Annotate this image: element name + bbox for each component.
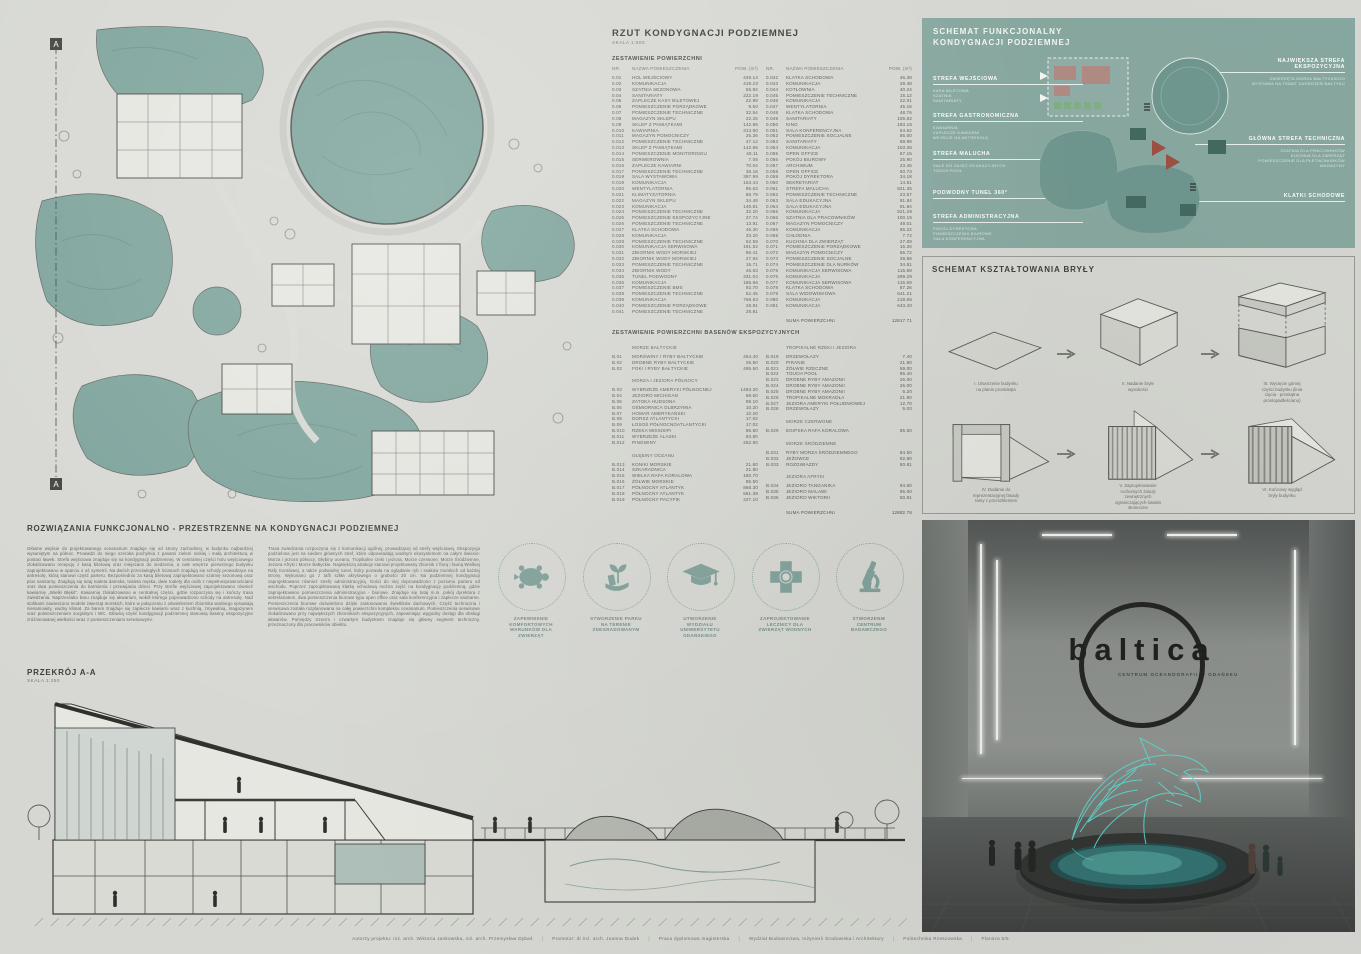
footer-item: Plansza 5/5 xyxy=(962,936,1009,941)
massing-step-3-diagram xyxy=(1223,279,1341,379)
ceiling-light xyxy=(1042,534,1112,536)
goal-university xyxy=(667,543,735,611)
section-drawing xyxy=(25,688,907,930)
arrow-right-icon xyxy=(1201,349,1221,359)
solutions-heading: ROZWIĄZANIA FUNKCJONALNO - PRZESTRZENNE … xyxy=(27,524,399,533)
goal-caption-3: UTWORZENIE WYDZIAŁU UNIWERSYTETU GDAŃSKI… xyxy=(658,616,742,638)
functional-scheme-panel: SCHEMAT FUNKCJONALNY KONDYGNACJI PODZIEM… xyxy=(922,18,1355,248)
goal-caption-4: ZAPROJEKTOWANIE LECZNICY DLA ZWIERZĄT WO… xyxy=(743,616,827,633)
arrow-right-icon xyxy=(1057,349,1077,359)
footer-item: Autorzy projektu: inż. arch. Wiktoria Ja… xyxy=(352,936,533,941)
table-row: B.03 FOKI I RYBY BAŁTYCKIE 495.50 xyxy=(612,366,758,372)
table-row: B.028 DRZEWOŁAZY 5.00 xyxy=(766,406,912,412)
massing-caption-5: V. Zaprojektowanie ruchomych żaluzji zew… xyxy=(1078,483,1198,511)
goal-clinic xyxy=(752,543,820,611)
graduation-cap-icon xyxy=(679,555,723,599)
massing-caption-6: VI. Końcowy wygląd bryły budynku xyxy=(1222,487,1342,498)
table-row: B.029 EGIPSKA RAFA KORALOWA 85.50 xyxy=(766,428,912,434)
footer-item: Wydział Budownictwa, Inżynierii Środowis… xyxy=(730,936,884,941)
turtle-icon xyxy=(511,556,553,598)
massing-caption-3: III. Wycięcie górnej części budynku (lin… xyxy=(1222,381,1342,403)
area-table-subtitle: ZESTAWIENIE POWIERZCHNI xyxy=(612,56,702,62)
area-table-header-left: NR. NAZWA POMIESZCZENIA POW. (m²) xyxy=(612,66,758,71)
goal-caption-2: STWORZENIE PARKU NA TERENIE ZDEGRADOWANY… xyxy=(574,616,658,633)
pools-table-right-column: TROPIKALNE RZEKI I JEZIORA B.019 DRZEWOŁ… xyxy=(766,338,912,516)
massing-caption-4: IV. Dodanie do reprezentacyjnej fasady r… xyxy=(936,487,1056,504)
plan-scale: SKALA 1:500 xyxy=(612,41,912,46)
svg-text:A: A xyxy=(53,40,59,49)
goal-research xyxy=(836,543,904,611)
table-row: 0.041 POMIESZCZENIE TECHNICZNE 28.81 xyxy=(612,309,758,315)
table-row: SUMA POWIERZCHNI 12882.76 xyxy=(766,510,912,516)
goal-caption-1: ZAPEWNIENIE KOMFORTOWYCH WARUNKÓW DLA ZW… xyxy=(489,616,573,638)
footer: Autorzy projektu: inż. arch. Wiktoria Ja… xyxy=(0,936,1361,941)
table-row: SUMA POWIERZCHNI 12817.71 xyxy=(766,318,912,324)
footer-item: Politechnika Rzeszowska xyxy=(884,936,962,941)
table-row: TROPIKALNE RZEKI I JEZIORA xyxy=(766,345,912,351)
table-row: B.033 ROZGWIAZDY 50.81 xyxy=(766,462,912,468)
plan-title: RZUT KONDYGNACJI PODZIEMNEJ xyxy=(612,28,912,39)
table-row: B.019 PÓŁNOCNY PACYFIK 227.10 xyxy=(612,497,758,503)
table-row: B.012 PINGWINY 252.90 xyxy=(612,440,758,446)
massing-step-4-diagram xyxy=(937,409,1055,489)
area-table-left-column: 0.01 HOL WEJŚCIOWY 449.14 0.02 KOMUNIKAC… xyxy=(612,75,758,315)
table-row: MORZE BAŁTYCKIE xyxy=(612,345,758,351)
pool-and-dolphin-sculpture xyxy=(922,708,1355,932)
table-row: MORZE ŚRÓDZIEMNE xyxy=(766,441,912,447)
microscope-icon xyxy=(849,556,891,598)
ceiling-light xyxy=(1167,534,1237,536)
interior-render: baltica CENTRUM OCEANOGRAFII W GDAŃSKU xyxy=(922,520,1355,932)
massing-scheme-panel: SCHEMAT KSZTAŁTOWANIA BRYŁY xyxy=(922,256,1355,514)
massing-step-1-diagram xyxy=(937,297,1055,379)
section-scale: SKALA 1:250 xyxy=(27,679,96,684)
arrow-right-icon xyxy=(1057,449,1077,459)
area-table-header-right: NR. NAZWA POMIESZCZENIA POW. (m²) xyxy=(766,66,912,71)
solutions-paragraph-2: Trasa zwiedzania rozpoczyna się z komuni… xyxy=(268,546,480,628)
massing-scheme-title: SCHEMAT KSZTAŁTOWANIA BRYŁY xyxy=(932,265,1095,274)
table-row: MORZE CZERWONE xyxy=(766,419,912,425)
sprout-hand-icon xyxy=(596,556,638,598)
section-title-block: PRZEKRÓJ A-A SKALA 1:250 xyxy=(27,668,96,684)
area-table-right-column: 0.042 KLATKA SCHODOWA 46.38 0.043 KOMUNI… xyxy=(766,75,912,324)
goal-caption-5: STWORZENIE CENTRUM BADAWCZEGO xyxy=(827,616,911,633)
goal-park xyxy=(583,543,651,611)
massing-step-5-diagram xyxy=(1079,403,1197,489)
underground-floor-plan-drawing: A A xyxy=(22,16,602,512)
section-title: PRZEKRÓJ A-A xyxy=(27,668,96,677)
table-row: MORZA I JEZIORA PÓŁNOCY xyxy=(612,378,758,384)
massing-step-2-diagram xyxy=(1079,285,1197,379)
presentation-board: A A RZUT KONDYGNACJI PODZIEMNEJ SKALA 1:… xyxy=(0,0,1361,954)
pools-table-left-column: MORZE BAŁTYCKIE B.01 MORŚWINY I RYBY BAŁ… xyxy=(612,338,758,502)
massing-step-6-diagram xyxy=(1223,409,1341,489)
goal-animal-welfare xyxy=(498,543,566,611)
solutions-paragraph-1: Główne wejście do projektowanego oceanar… xyxy=(27,546,253,622)
baltica-logo-subtitle: CENTRUM OCEANOGRAFII W GDAŃSKU xyxy=(1118,672,1278,677)
table-row: JEZIORA AFRYKI xyxy=(766,474,912,480)
table-row: B.036 JEZIORO WIKTORII 50.81 xyxy=(766,495,912,501)
arrow-right-icon xyxy=(1201,449,1221,459)
massing-caption-2: II. Nadanie bryle wysokości xyxy=(1078,381,1198,392)
pools-table-title: ZESTAWIENIE POWIERZCHNI BASENÓW EKSPOZYC… xyxy=(612,330,800,336)
footer-item: Promotor: dr inż. arch. Joanna Dudek xyxy=(533,936,640,941)
table-row: GŁĘBINY OCEANU xyxy=(612,453,758,459)
massing-caption-1: I. Utworzenie budynku na planie prostoką… xyxy=(936,381,1056,392)
footer-item: Praca dyplomowa magisterska xyxy=(639,936,729,941)
plan-title-block: RZUT KONDYGNACJI PODZIEMNEJ SKALA 1:500 xyxy=(612,28,912,46)
svg-text:A: A xyxy=(53,480,59,489)
medical-cross-icon xyxy=(765,556,807,598)
baltica-logo-text: baltica xyxy=(982,632,1302,668)
functional-mini-plan xyxy=(1040,44,1246,242)
table-row: 0.081 KOMUNIKACJA 643.40 xyxy=(766,303,912,309)
